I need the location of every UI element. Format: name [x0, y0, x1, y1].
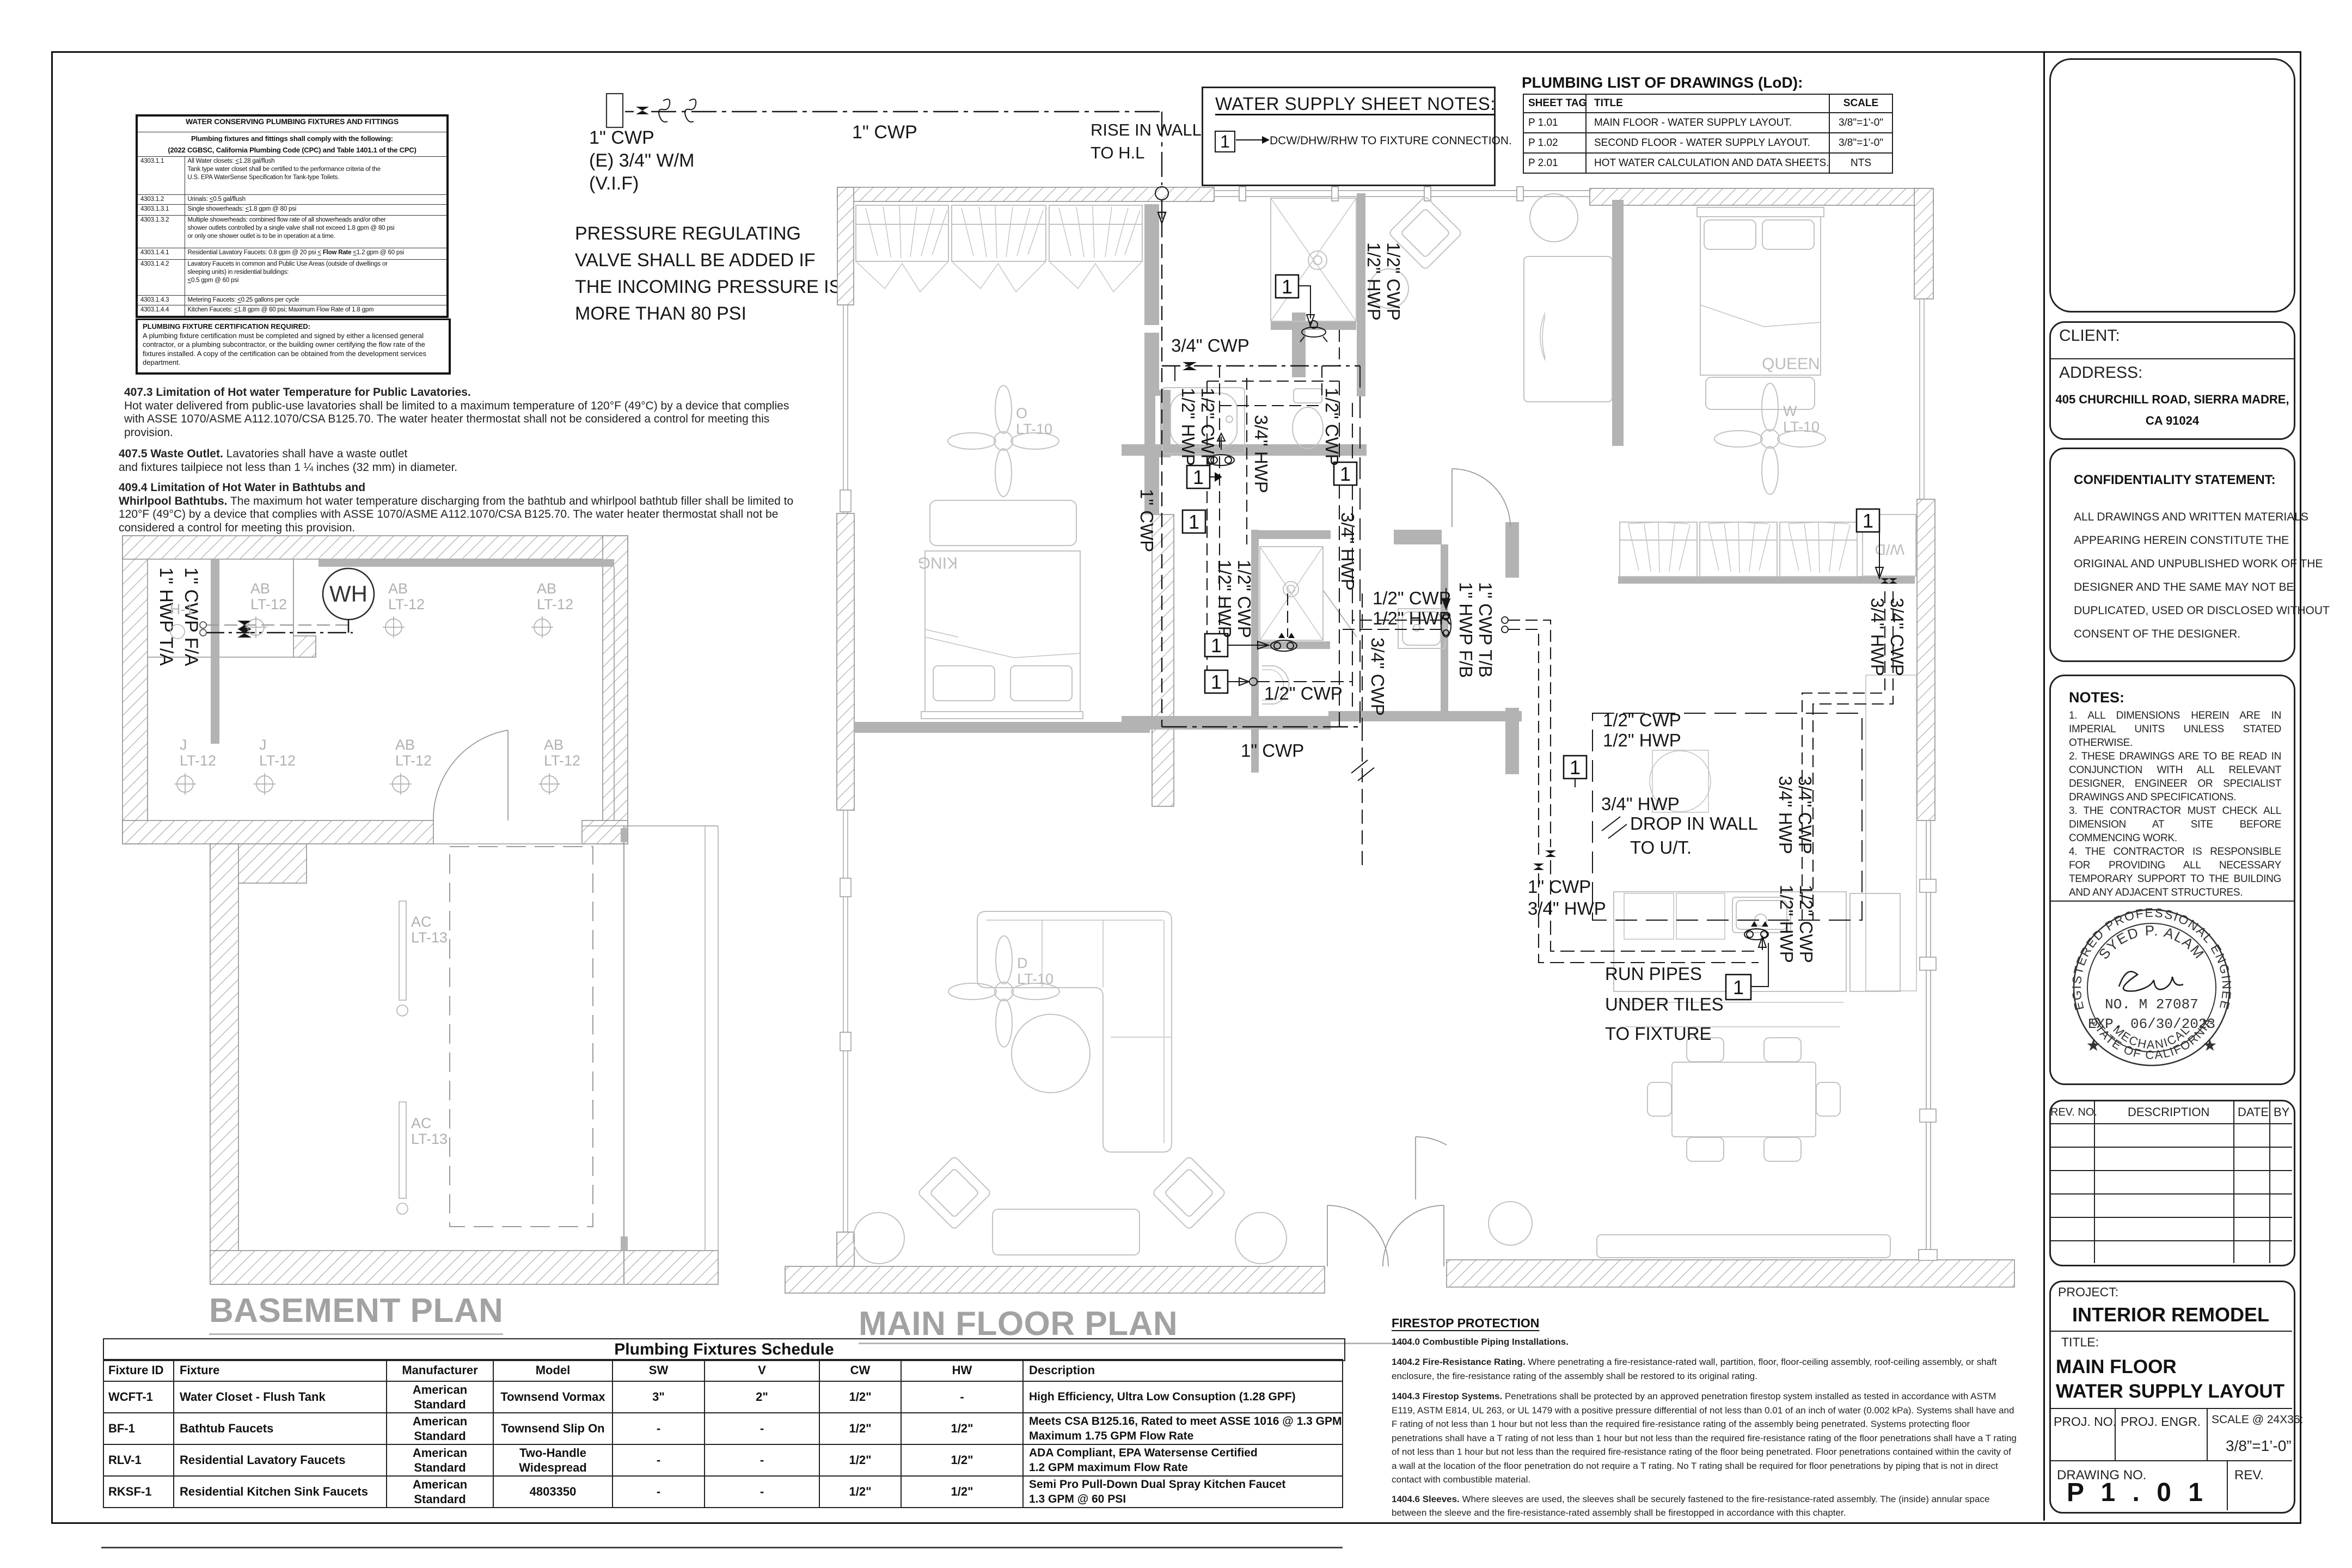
svg-text:H-1: H-1	[170, 601, 194, 617]
svg-text:LT-10: LT-10	[1783, 419, 1820, 435]
svg-text:AB: AB	[537, 580, 556, 597]
svg-text:3/4" HWP: 3/4" HWP	[1775, 776, 1796, 854]
svg-text:1" CWP: 1" CWP	[1528, 877, 1591, 897]
svg-text:3/4" HWP: 3/4" HWP	[1867, 598, 1888, 676]
svg-text:QUEEN: QUEEN	[1762, 355, 1820, 373]
svg-text:D: D	[1017, 955, 1028, 971]
svg-text:3/4" HWP: 3/4" HWP	[1528, 898, 1606, 918]
svg-text:LT-12: LT-12	[180, 752, 216, 769]
svg-text:3/4" HWP: 3/4" HWP	[1338, 512, 1358, 591]
svg-text:KING: KING	[918, 554, 958, 572]
svg-text:O: O	[1016, 405, 1027, 421]
svg-text:1/2" CWP: 1/2" CWP	[1796, 885, 1816, 963]
svg-text:1/2" CWP: 1/2" CWP	[1234, 560, 1254, 638]
svg-text:AC: AC	[411, 1115, 432, 1131]
svg-text:1" CWP: 1" CWP	[1137, 489, 1157, 552]
svg-text:LT-13: LT-13	[411, 1131, 448, 1147]
svg-text:AC: AC	[411, 914, 432, 930]
svg-text:AB: AB	[544, 737, 563, 753]
svg-text:LT-12: LT-12	[395, 752, 432, 769]
svg-text:1/2" HWP: 1/2" HWP	[1603, 730, 1681, 750]
svg-text:1/2" HWP: 1/2" HWP	[1178, 388, 1198, 466]
svg-text:WH: WH	[329, 581, 367, 607]
svg-text:LT-12: LT-12	[537, 596, 573, 612]
svg-text:1/2" CWP: 1/2" CWP	[1198, 388, 1218, 466]
svg-text:1" CWP: 1" CWP	[1241, 740, 1304, 761]
svg-text:REGISTERED PROFESSIONAL ENGINE: REGISTERED PROFESSIONAL ENGINEER	[0, 0, 2234, 1012]
svg-text:★: ★	[2086, 1037, 2101, 1055]
svg-text:3/4" CWP: 3/4" CWP	[1887, 598, 1907, 676]
svg-text:1: 1	[1282, 275, 1293, 298]
svg-text:1/2" CWP: 1/2" CWP	[1373, 588, 1451, 608]
svg-text:LT-10: LT-10	[1017, 971, 1053, 987]
svg-text:AB: AB	[250, 580, 270, 597]
svg-text:W: W	[1783, 403, 1797, 419]
svg-text:1/2" CWP: 1/2" CWP	[1383, 242, 1404, 321]
svg-text:1: 1	[1340, 463, 1351, 485]
svg-text:1: 1	[1863, 510, 1873, 532]
svg-text:1: 1	[1193, 466, 1204, 488]
svg-text:1/2" HWP: 1/2" HWP	[1364, 242, 1384, 321]
svg-text:DROP IN WALL: DROP IN WALL	[1630, 813, 1758, 834]
svg-text:★: ★	[2203, 1037, 2218, 1055]
svg-text:3/4" CWP: 3/4" CWP	[1368, 638, 1388, 716]
svg-text:TO FIXTURE: TO FIXTURE	[1605, 1024, 1712, 1044]
svg-text:1: 1	[1211, 671, 1222, 693]
svg-text:LT-13: LT-13	[411, 929, 448, 946]
svg-text:UNDER TILES: UNDER TILES	[1605, 994, 1724, 1014]
svg-text:LT-12: LT-12	[259, 752, 296, 769]
svg-text:3/4" CWP: 3/4" CWP	[1795, 776, 1815, 854]
svg-text:1/2" HWP: 1/2" HWP	[1215, 560, 1235, 638]
svg-text:3/4" CWP: 3/4" CWP	[1171, 335, 1249, 356]
svg-text:AB: AB	[395, 737, 415, 753]
svg-text:LT-10: LT-10	[1016, 421, 1052, 437]
svg-text:NO. M 27087: NO. M 27087	[2105, 996, 2198, 1013]
svg-text:1/2" HWP: 1/2" HWP	[1777, 885, 1797, 963]
svg-text:J: J	[180, 737, 187, 753]
svg-text:3/4" HWP: 3/4" HWP	[1251, 415, 1271, 493]
svg-text:1" CWP T/B: 1" CWP T/B	[1475, 582, 1496, 678]
svg-text:1: 1	[1733, 976, 1744, 999]
svg-text:1: 1	[1189, 511, 1199, 533]
svg-text:1: 1	[1570, 756, 1581, 779]
svg-text:1/2" CWP: 1/2" CWP	[1322, 388, 1342, 466]
svg-text:LT-12: LT-12	[250, 596, 287, 612]
svg-text:LT-12: LT-12	[388, 596, 425, 612]
svg-text:J: J	[259, 737, 267, 753]
svg-text:RUN PIPES: RUN PIPES	[1605, 964, 1702, 984]
svg-text:AB: AB	[388, 580, 408, 597]
svg-text:1/2" CWP: 1/2" CWP	[1264, 683, 1343, 703]
svg-text:1/2" CWP: 1/2" CWP	[1603, 710, 1681, 730]
svg-text:LT-12: LT-12	[544, 752, 580, 769]
svg-text:1/2" HWR: 1/2" HWR	[1373, 608, 1452, 628]
svg-text:TO U/T.: TO U/T.	[1630, 837, 1692, 857]
svg-text:3/4" HWP: 3/4" HWP	[1601, 794, 1680, 814]
svg-text:1" HWP F/B: 1" HWP F/B	[1456, 582, 1476, 678]
